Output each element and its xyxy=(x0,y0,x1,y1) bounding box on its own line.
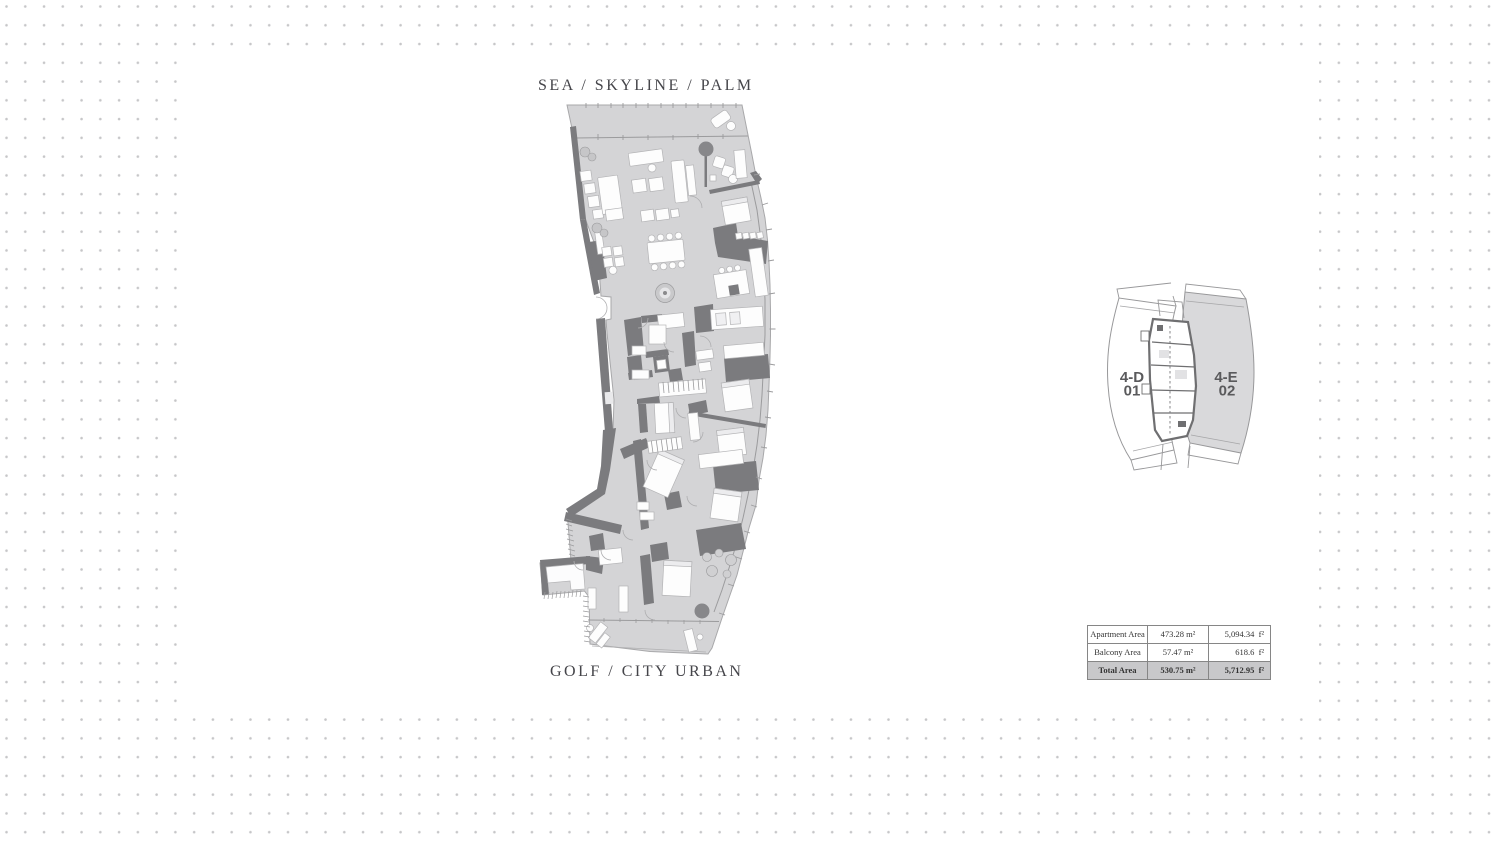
svg-text:01: 01 xyxy=(1124,383,1141,400)
svg-text:02: 02 xyxy=(1219,383,1236,400)
